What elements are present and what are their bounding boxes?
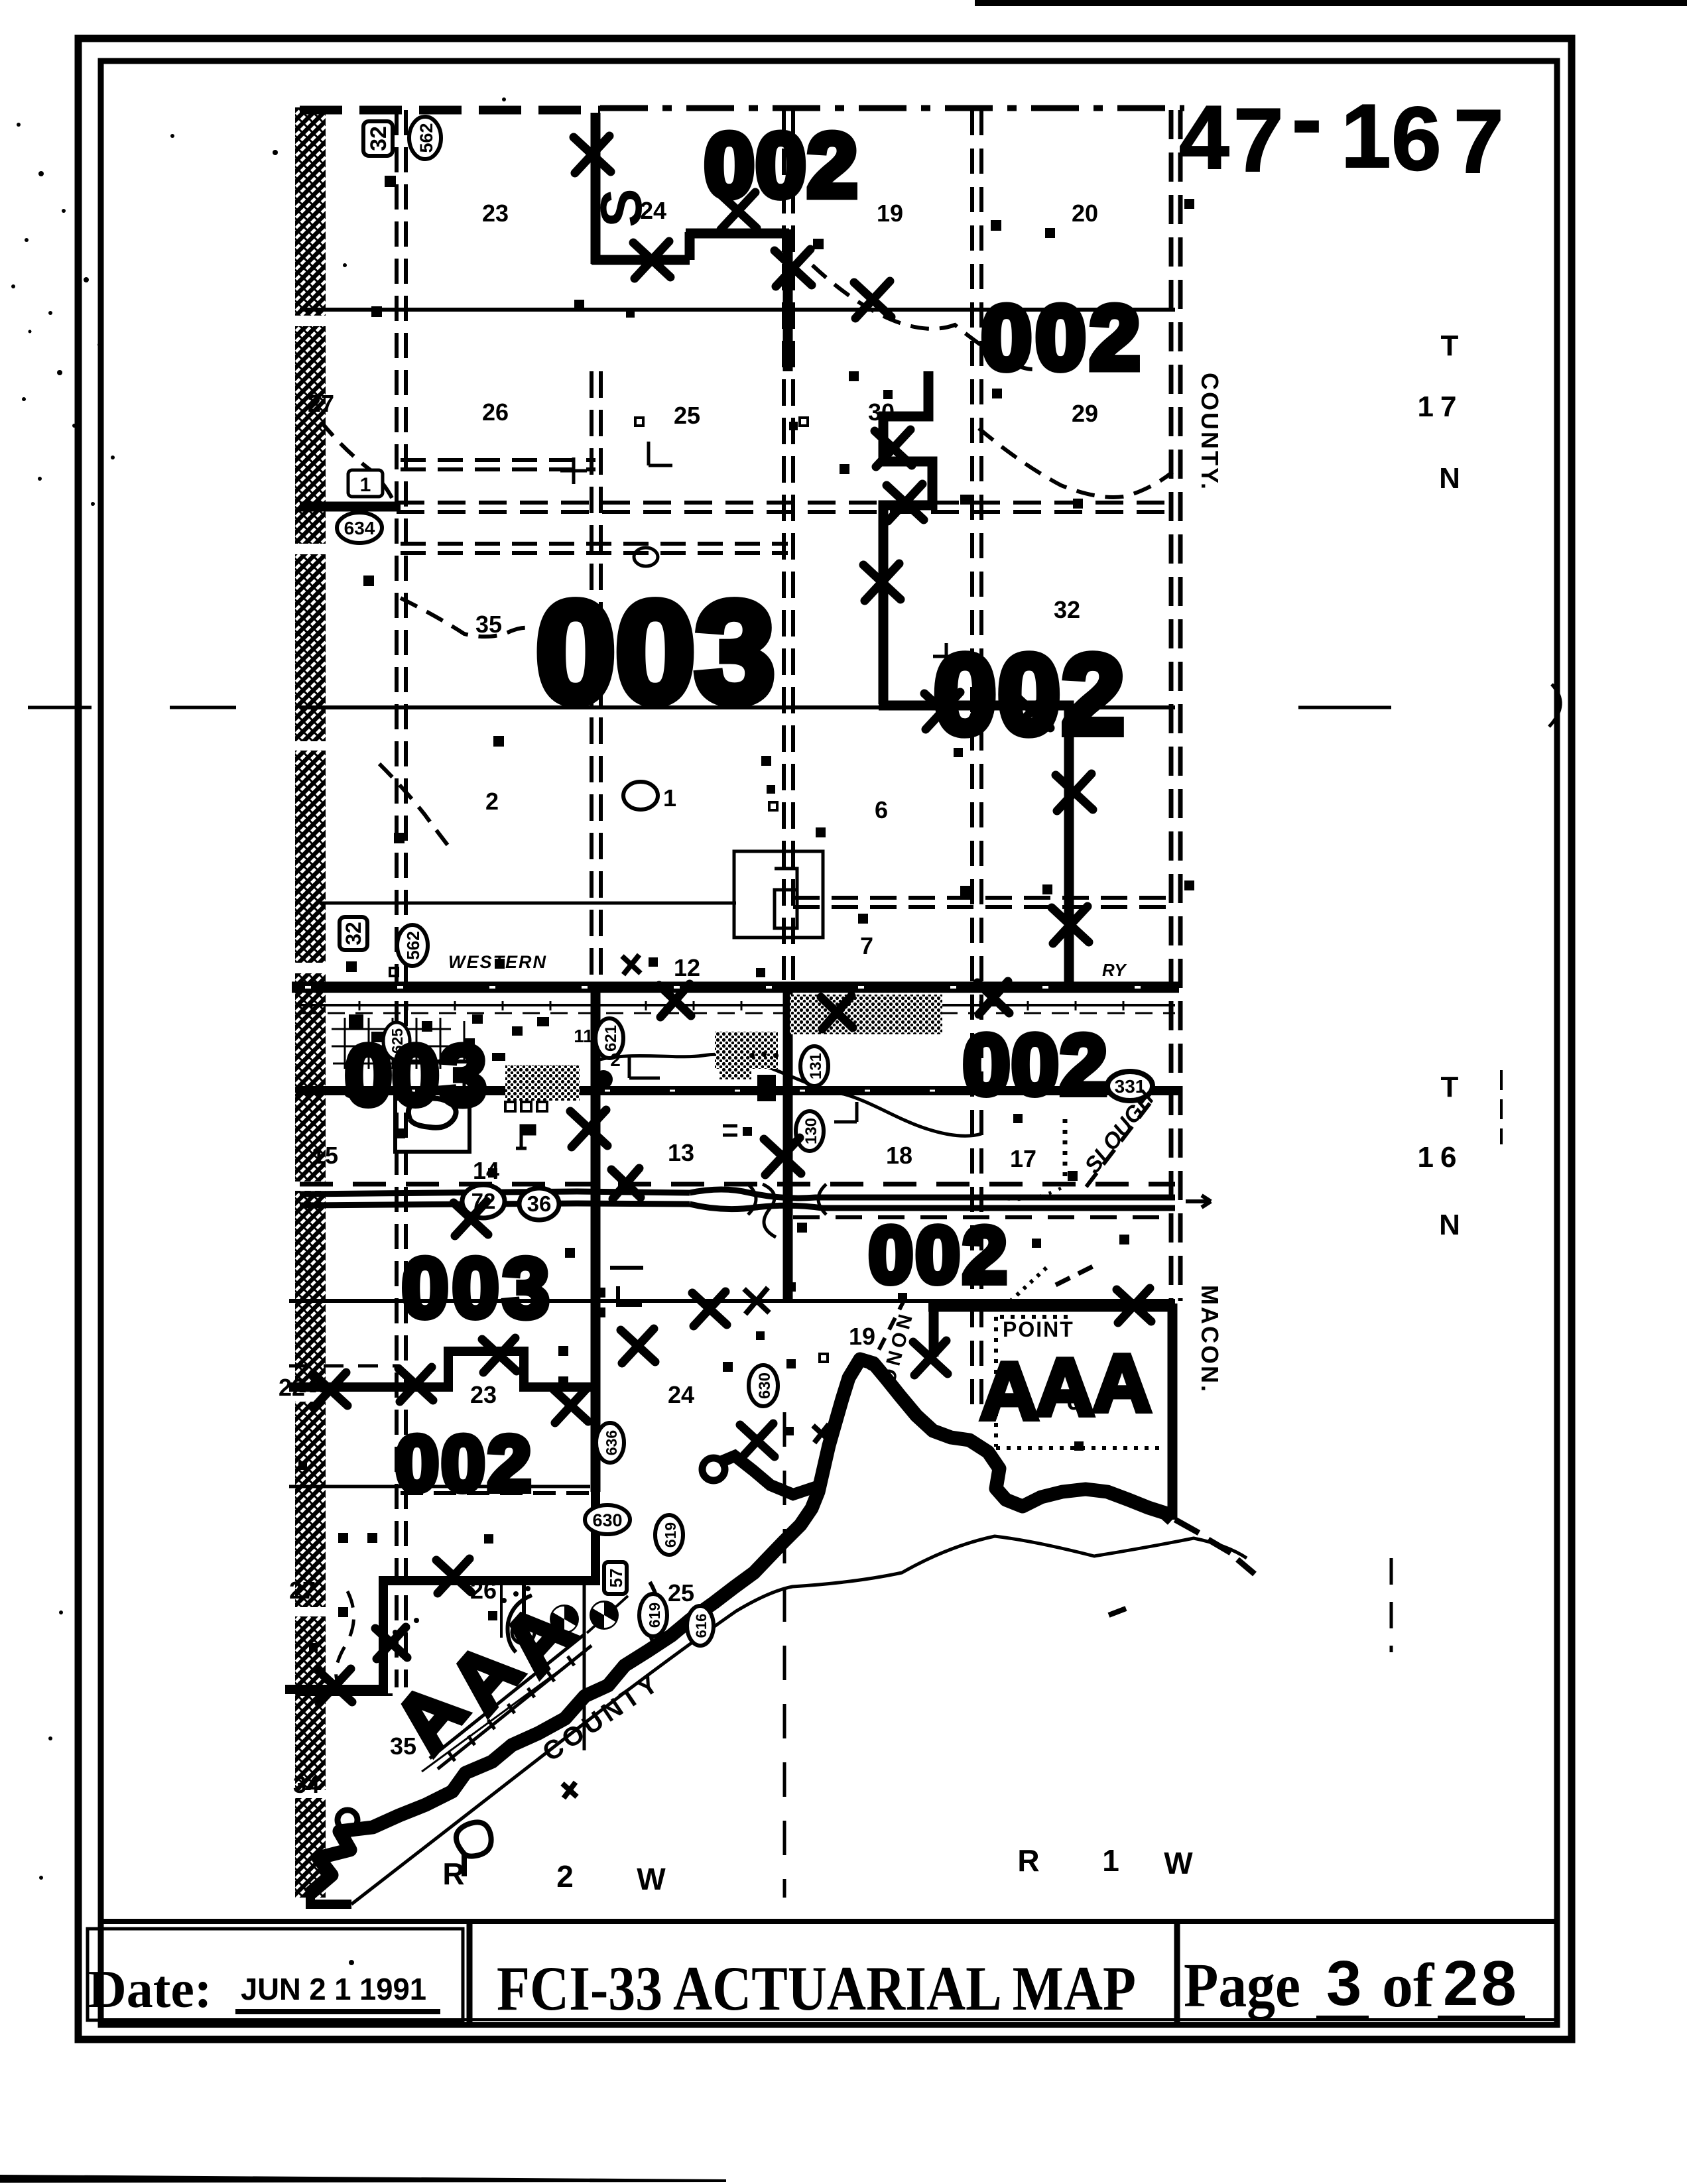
svg-text:32: 32 bbox=[342, 922, 365, 945]
svg-text:4: 4 bbox=[1179, 87, 1229, 188]
svg-text:-: - bbox=[1292, 68, 1322, 169]
svg-text:630: 630 bbox=[592, 1510, 622, 1530]
svg-text:619: 619 bbox=[662, 1522, 679, 1547]
svg-text:562: 562 bbox=[416, 123, 436, 152]
svg-text:A: A bbox=[980, 1346, 1038, 1436]
svg-text:130: 130 bbox=[802, 1118, 820, 1144]
svg-text:Date:: Date: bbox=[88, 1961, 212, 2019]
svg-text:1: 1 bbox=[1102, 1843, 1119, 1878]
svg-text:57: 57 bbox=[606, 1569, 626, 1588]
svg-text:6: 6 bbox=[875, 796, 888, 823]
svg-text:29: 29 bbox=[1072, 400, 1098, 427]
svg-text:13: 13 bbox=[668, 1139, 694, 1166]
svg-text:35: 35 bbox=[475, 611, 502, 638]
svg-text:23: 23 bbox=[482, 200, 509, 227]
svg-text:630: 630 bbox=[756, 1372, 774, 1399]
svg-text:16: 16 bbox=[1418, 1141, 1464, 1174]
svg-text:POINT: POINT bbox=[1003, 1317, 1074, 1341]
svg-text:RY: RY bbox=[1102, 960, 1127, 980]
svg-text:1: 1 bbox=[360, 474, 371, 496]
svg-text:23: 23 bbox=[470, 1381, 497, 1408]
svg-text:621: 621 bbox=[602, 1025, 620, 1052]
svg-text:COUNTY.: COUNTY. bbox=[1196, 373, 1223, 491]
svg-text:27: 27 bbox=[289, 1577, 316, 1604]
svg-text:36: 36 bbox=[527, 1191, 552, 1216]
svg-text:of: of bbox=[1382, 1951, 1435, 2020]
svg-text:616: 616 bbox=[693, 1614, 710, 1638]
svg-text:7: 7 bbox=[860, 932, 873, 959]
svg-text:17: 17 bbox=[1418, 391, 1464, 423]
svg-text:12: 12 bbox=[674, 954, 700, 981]
svg-text:002: 002 bbox=[963, 1018, 1109, 1113]
svg-text:2: 2 bbox=[485, 788, 499, 815]
svg-text:A: A bbox=[1093, 1338, 1151, 1428]
svg-text:Page: Page bbox=[1184, 1951, 1300, 2020]
svg-text:11: 11 bbox=[574, 1026, 594, 1046]
svg-text:W: W bbox=[1164, 1846, 1193, 1880]
svg-text:002: 002 bbox=[395, 1420, 534, 1508]
svg-text:34: 34 bbox=[293, 1771, 320, 1798]
svg-text:002: 002 bbox=[981, 287, 1144, 388]
svg-text:FCI-33 ACTUARIAL MAP: FCI-33 ACTUARIAL MAP bbox=[497, 1953, 1136, 2024]
svg-text:T: T bbox=[1441, 330, 1459, 362]
svg-text:R: R bbox=[442, 1856, 464, 1891]
svg-text:32: 32 bbox=[1054, 596, 1080, 623]
svg-text:18: 18 bbox=[886, 1142, 912, 1169]
svg-text:1: 1 bbox=[663, 784, 676, 812]
svg-text:A: A bbox=[1036, 1342, 1094, 1432]
svg-text:30: 30 bbox=[868, 398, 895, 426]
svg-text:19: 19 bbox=[849, 1323, 875, 1350]
svg-text:562: 562 bbox=[403, 931, 423, 959]
svg-text:22: 22 bbox=[279, 1374, 305, 1401]
svg-text:JUN 2 1 1991: JUN 2 1 1991 bbox=[241, 1972, 426, 2006]
svg-text:3: 3 bbox=[1326, 1948, 1361, 2019]
svg-text:003: 003 bbox=[402, 1241, 553, 1335]
svg-text:24: 24 bbox=[668, 1381, 694, 1408]
svg-text:131: 131 bbox=[807, 1053, 825, 1079]
svg-text:25: 25 bbox=[674, 402, 700, 429]
svg-text:15: 15 bbox=[312, 1142, 338, 1169]
svg-text:7: 7 bbox=[1233, 90, 1284, 190]
svg-text:32: 32 bbox=[366, 126, 391, 151]
svg-text:1: 1 bbox=[1341, 86, 1391, 186]
svg-text:2: 2 bbox=[610, 1050, 621, 1070]
svg-text:S: S bbox=[588, 188, 654, 227]
svg-text:19: 19 bbox=[877, 200, 903, 227]
svg-text:T: T bbox=[1441, 1071, 1459, 1103]
svg-text:2: 2 bbox=[556, 1859, 574, 1894]
svg-text:R: R bbox=[1017, 1843, 1039, 1878]
svg-text:002: 002 bbox=[869, 1211, 1009, 1300]
svg-text:MACON.: MACON. bbox=[1196, 1285, 1223, 1394]
svg-text:20: 20 bbox=[1072, 200, 1098, 227]
svg-text:28: 28 bbox=[1443, 1948, 1519, 2019]
svg-text:6: 6 bbox=[1391, 88, 1442, 189]
svg-text:7: 7 bbox=[1454, 91, 1504, 192]
svg-text:W: W bbox=[637, 1862, 666, 1896]
svg-text:N: N bbox=[1439, 462, 1460, 495]
svg-text:27: 27 bbox=[308, 390, 334, 417]
svg-text:26: 26 bbox=[482, 398, 509, 426]
svg-text:003: 003 bbox=[345, 1028, 487, 1123]
svg-text:25: 25 bbox=[668, 1579, 694, 1607]
svg-text:-: - bbox=[1053, 1385, 1061, 1412]
svg-text:17: 17 bbox=[1010, 1145, 1036, 1172]
svg-text:619: 619 bbox=[646, 1603, 663, 1628]
svg-text:634: 634 bbox=[344, 518, 375, 538]
svg-text:003: 003 bbox=[536, 572, 775, 732]
svg-text:0: 0 bbox=[1066, 1386, 1081, 1416]
svg-text:N: N bbox=[1439, 1209, 1460, 1241]
svg-text:636: 636 bbox=[603, 1430, 620, 1455]
svg-text:33: 33 bbox=[759, 1080, 776, 1096]
